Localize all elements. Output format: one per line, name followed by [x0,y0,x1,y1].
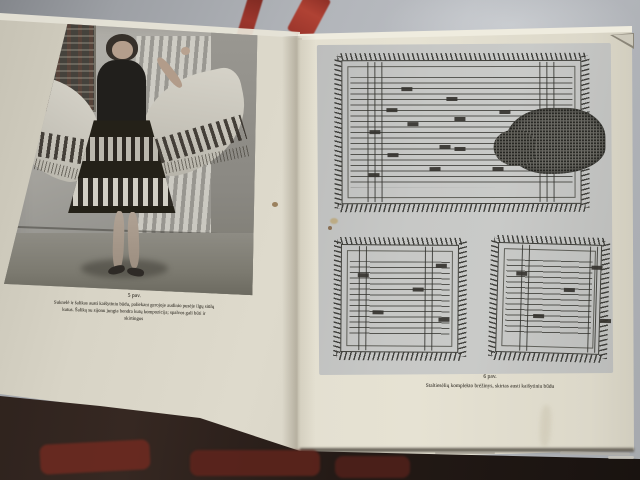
photo-of-open-book: 5 pav. Suknelė ir šalikas austi kaišytin… [0,0,640,480]
pattern-motif [438,318,449,322]
fringe-edge [338,204,586,212]
pattern-motif [413,288,424,292]
pattern-motif [436,264,447,268]
foxing-spot [328,226,332,230]
figure-5-caption: 5 pav. Suknelė ir šalikas austi kaišytin… [0,288,268,325]
pattern-motif [373,310,384,314]
small-napkin-diagram-left [332,236,467,361]
pattern-motif [533,314,544,318]
pattern-motif [516,272,527,276]
foxing-spot [272,202,278,207]
pattern-motif [564,288,575,292]
pattern-motif [600,319,611,323]
pattern-motif [358,273,369,277]
skirt-hem-band [68,178,176,206]
woven-texture-swatch [493,130,535,166]
fringe-edge [458,241,467,357]
book-cover-glint [435,452,495,454]
page-stain [539,405,552,448]
book-cover-glint [608,456,634,459]
shawl-pattern [6,126,94,165]
pattern-motif [369,173,380,177]
book-cover-glint [560,451,630,455]
halftone-plate [317,43,613,375]
pattern-motif [430,167,441,171]
pattern-motif [439,145,450,149]
small-napkin-diagram-right [487,234,610,363]
figure-6-label: 6 pav. [378,372,602,380]
woman-face [112,41,132,59]
hand [181,47,190,55]
table-red-patch [190,450,320,476]
foxing-spot [330,218,338,224]
pattern-motif [446,97,457,101]
pattern-motif [499,110,510,114]
figure-6-caption: 6 pav. Staltiesėlių komplekto brėžinys, … [330,372,640,390]
pattern-motif [407,122,418,126]
large-tablecloth-diagram [333,52,589,212]
pattern-motif [401,87,412,91]
pattern-motif [369,130,380,134]
pattern-motif [387,153,398,157]
fringe-edge [336,352,462,361]
woman-with-woven-shawl-photo [4,16,260,298]
warp-line [381,62,382,202]
caption-line: Staltiesėlių komplekto brėžinys, skirtas… [384,381,595,387]
book-gutter-shadow [282,36,316,456]
pattern-motif [591,266,602,270]
table-red-patch [39,439,150,475]
pattern-motif [493,167,504,171]
table-red-patch [335,456,410,478]
dress-bodice [97,60,146,128]
pattern-motif [386,108,397,112]
pattern-motif [454,147,465,151]
diagram-border [495,242,602,355]
pattern-motif [454,117,465,121]
